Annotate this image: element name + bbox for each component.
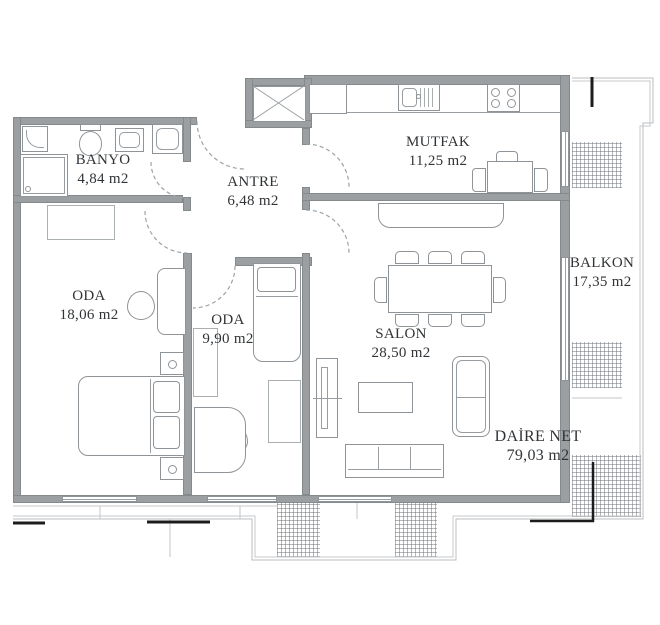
room-area: 28,50 m2 (331, 344, 471, 363)
room-name: ODA (19, 287, 159, 306)
room-name: ODA (158, 311, 298, 330)
bedroom-small-door-arc (193, 266, 235, 308)
room-label-banyo: BANYO 4,84 m2 (33, 151, 173, 189)
floor-plan: BANYO 4,84 m2 ANTRE 6,48 m2 MUTFAK 11,25… (0, 0, 660, 625)
entrance-door-arc (197, 121, 245, 169)
shaft-x-icon (253, 86, 304, 120)
room-label-balkon: BALKON 17,35 m2 (532, 254, 660, 292)
net-area-label: DAİRE NET 79,03 m2 (458, 427, 618, 465)
room-name: ANTRE (183, 173, 323, 192)
room-area: 4,84 m2 (33, 170, 173, 189)
room-name: BANYO (33, 151, 173, 170)
room-label-mutfak: MUTFAK 11,25 m2 (368, 133, 508, 171)
slab-tick-lines (100, 503, 357, 557)
bedroom-large-door-arc (145, 211, 187, 253)
section-mark (530, 462, 594, 522)
room-area: 17,35 m2 (532, 273, 660, 292)
room-label-antre: ANTRE 6,48 m2 (183, 173, 323, 211)
room-area: 9,90 m2 (158, 330, 298, 349)
room-name: MUTFAK (368, 133, 508, 152)
room-name: SALON (331, 325, 471, 344)
room-area: 11,25 m2 (368, 152, 508, 171)
room-label-oda-large: ODA 18,06 m2 (19, 287, 159, 325)
net-area-value: 79,03 m2 (458, 446, 618, 465)
room-area: 6,48 m2 (183, 192, 323, 211)
salon-door-arc (306, 210, 349, 253)
room-area: 18,06 m2 (19, 306, 159, 325)
room-label-salon: SALON 28,50 m2 (331, 325, 471, 363)
room-name: BALKON (532, 254, 660, 273)
net-area-title: DAİRE NET (458, 427, 618, 446)
room-label-oda-small: ODA 9,90 m2 (158, 311, 298, 349)
